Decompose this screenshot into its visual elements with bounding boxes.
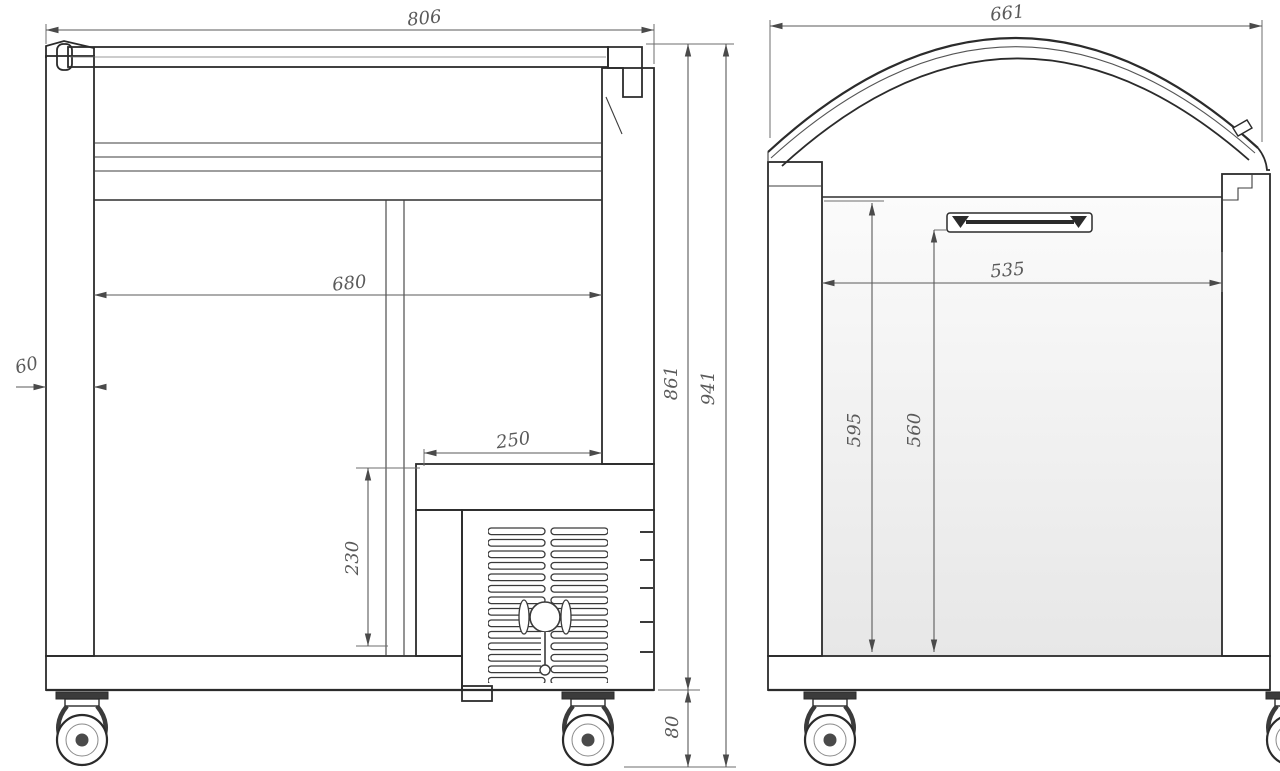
insulated-left-wall-front — [768, 162, 822, 656]
dim-label-595: 595 — [844, 413, 865, 447]
lid-track-lines — [94, 143, 602, 171]
side-section-view: 806 680 250 230 60 861 — [13, 6, 736, 767]
fan-bracket-left — [519, 600, 529, 634]
caster-side-right — [562, 692, 614, 765]
inner-partition-lines — [386, 200, 404, 656]
dim-label-680: 680 — [331, 271, 367, 295]
dim-label-80: 80 — [662, 716, 683, 739]
fan-stem-end — [540, 665, 550, 675]
dim-label-806: 806 — [406, 6, 442, 30]
compartment-foot — [462, 686, 492, 701]
dim-overall-width-806: 806 — [46, 6, 654, 64]
caster-front-left — [804, 692, 856, 765]
insulated-right-wall-front — [1222, 174, 1270, 656]
insulated-floor — [46, 656, 462, 690]
glass-lid-left-cap — [57, 44, 72, 70]
front-section-view: 661 535 595 560 — [768, 1, 1280, 765]
insulated-step-side — [416, 510, 462, 656]
dim-inner-width-680: 680 — [94, 271, 602, 295]
dim-recess-height-230: 230 — [342, 468, 420, 646]
dim-label-60: 60 — [13, 353, 40, 379]
dim-label-250: 250 — [494, 428, 532, 454]
insulated-left-wall — [46, 56, 94, 656]
wall-top-slant-line — [606, 97, 622, 134]
dim-label-535: 535 — [989, 259, 1025, 283]
insulated-floor-front — [768, 656, 1270, 690]
left-wall-top-seat — [768, 152, 822, 186]
dim-recess-width-250: 250 — [424, 428, 602, 466]
fan-bracket-right — [561, 600, 571, 634]
dim-wall-thickness-60: 60 — [13, 353, 106, 387]
dim-label-941: 941 — [698, 371, 719, 405]
dim-front-overall-width-661: 661 — [770, 1, 1262, 142]
glass-lid-mid-arc — [771, 47, 1255, 158]
dim-label-661: 661 — [989, 1, 1025, 25]
glass-lid-inner-arc — [782, 58, 1249, 166]
dim-body-height-861: 861 — [646, 44, 734, 690]
dim-overall-height-941: 941 — [624, 44, 736, 767]
insulated-right-wall — [602, 68, 654, 464]
insulated-step-top — [416, 464, 654, 510]
dim-label-560: 560 — [904, 413, 925, 447]
rear-louver-ticks — [640, 532, 653, 652]
fan-motor-circle — [530, 602, 560, 632]
lid-handle-tab — [1233, 120, 1252, 136]
lid-right-end-profile — [1258, 148, 1270, 170]
glass-lid-right-hook — [608, 47, 642, 97]
dim-label-230: 230 — [342, 541, 363, 576]
dim-caster-height-80: 80 — [662, 690, 688, 767]
lid-rail-detail — [947, 213, 1092, 232]
caster-front-right — [1266, 692, 1280, 765]
technical-drawing-canvas: 806 680 250 230 60 861 — [0, 0, 1280, 771]
freezer-drawing: 806 680 250 230 60 861 — [0, 0, 1280, 771]
glass-lid-outer-arc — [768, 38, 1258, 152]
caster-side-left — [56, 692, 108, 765]
dim-label-861: 861 — [661, 366, 682, 400]
right-wall-top-steps — [1222, 174, 1252, 200]
